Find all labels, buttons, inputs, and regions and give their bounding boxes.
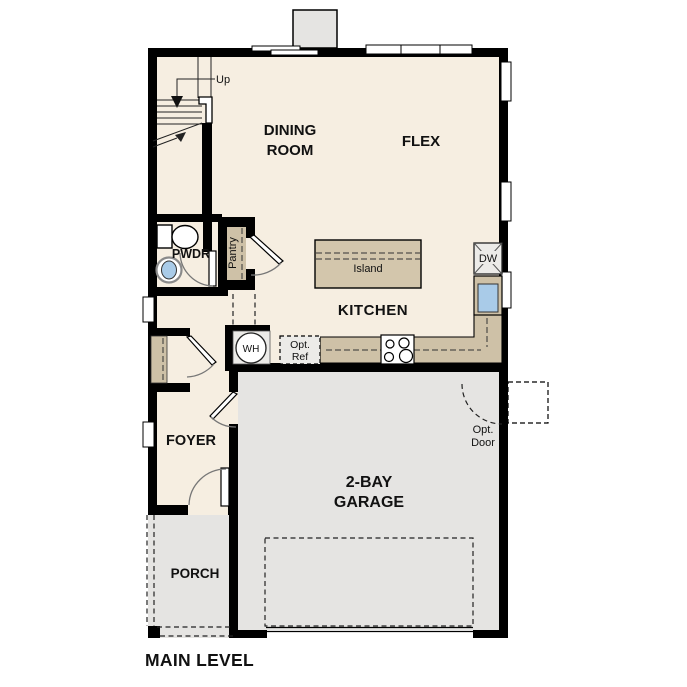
floorplan-drawing: Up DINING ROOM FLEX PWDR Pantry Island K… (0, 0, 687, 687)
kitchen-sink-basin (478, 284, 498, 312)
wall-stair (202, 123, 212, 215)
window-left-2 (143, 422, 154, 447)
window-right-1 (501, 62, 511, 101)
dishwasher-label: DW (479, 253, 498, 265)
wall-garage-top (229, 363, 508, 372)
water-heater-label: WH (243, 344, 260, 355)
up-label: Up (216, 74, 230, 86)
foyer-label: FOYER (166, 433, 216, 449)
wall-closet-bottom (148, 383, 190, 392)
burner (400, 350, 413, 363)
dining-room-label-1: DINING (264, 122, 317, 139)
wall-pwdr-top (148, 214, 222, 222)
flex-label: FLEX (402, 133, 440, 150)
opt-door-label-2: Door (471, 437, 495, 449)
window-right-2 (501, 182, 511, 221)
toilet-bowl (172, 226, 198, 249)
wall-garage-bottom-left (229, 630, 267, 638)
wall-garage-bottom-right (473, 630, 508, 638)
dining-room-label-2: ROOM (267, 142, 314, 159)
opt-ref-label-1: Opt. (290, 339, 310, 351)
closet-shelf (151, 336, 167, 383)
pwdr-sink-basin (162, 261, 177, 279)
wall-pantry-stub-bottom (245, 269, 255, 290)
opt-door-label-1: Opt. (473, 424, 494, 436)
garage-label-1: 2-BAY (346, 474, 393, 491)
front-door-panel (221, 468, 229, 506)
toilet-tank (157, 225, 172, 248)
garage-label-2: GARAGE (334, 494, 405, 511)
pwdr-label: PWDR (172, 247, 210, 261)
wall-pwdr-bottom (148, 287, 228, 296)
porch-post (148, 626, 160, 638)
opt-door-rect (508, 382, 548, 423)
plan-title: MAIN LEVEL (145, 650, 254, 670)
burner (399, 338, 409, 348)
wall-pantry-left (218, 217, 227, 290)
opt-ref-label-2: Ref (292, 351, 308, 363)
island-label: Island (353, 263, 382, 275)
burner (385, 353, 394, 362)
burner (386, 340, 394, 348)
wall-closet-top (148, 328, 190, 336)
kitchen-label: KITCHEN (338, 302, 408, 319)
floorplan-page: Up DINING ROOM FLEX PWDR Pantry Island K… (0, 0, 687, 687)
window-top-left-b (271, 50, 318, 55)
chimney (293, 10, 337, 48)
window-top-right (366, 45, 472, 54)
window-left-1 (143, 297, 154, 322)
porch-label: PORCH (171, 566, 220, 581)
pantry-label: Pantry (227, 237, 239, 269)
